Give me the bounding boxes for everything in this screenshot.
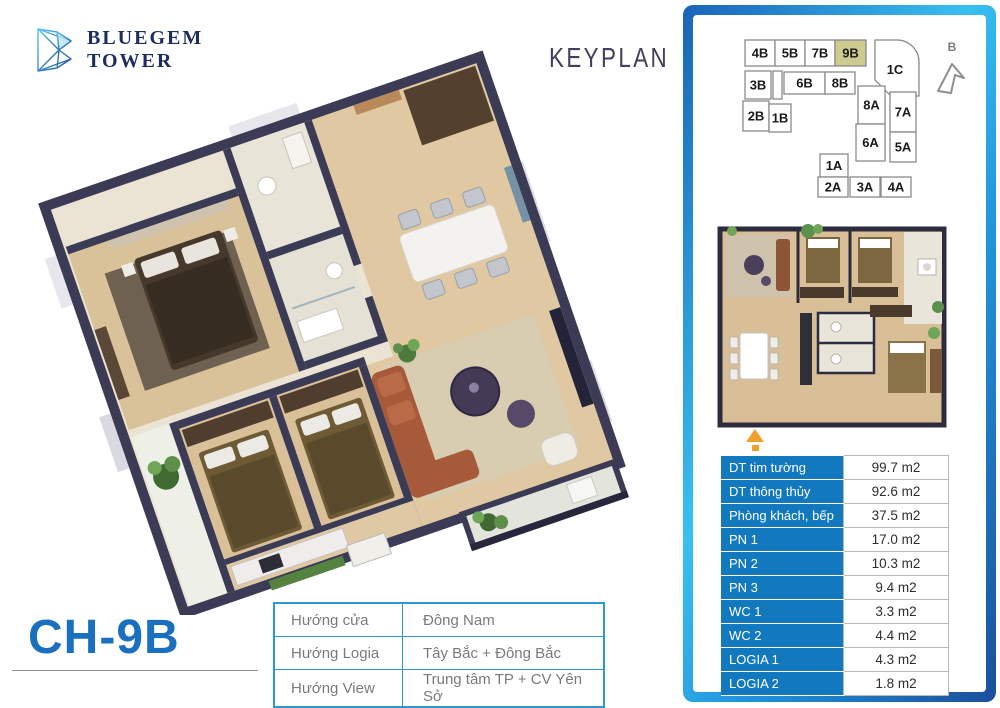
keyplan-unit-label: 8A: [863, 98, 880, 113]
keyplan-unit-label: 3B: [750, 78, 767, 93]
area-row: LOGIA 1 4.3 m2: [721, 648, 949, 672]
area-value-cell: 10.3 m2: [844, 552, 949, 576]
area-label-cell: DT tim tường: [721, 456, 844, 480]
orientation-value-cell: Tây Bắc + Đông Bắc: [403, 637, 605, 670]
area-value-cell: 9.4 m2: [844, 576, 949, 600]
area-label-cell: PN 1: [721, 528, 844, 552]
area-value-cell: 17.0 m2: [844, 528, 949, 552]
area-row: DT thông thủy 92.6 m2: [721, 480, 949, 504]
area-label-cell: PN 3: [721, 576, 844, 600]
keyplan-unit-label: 1B: [772, 111, 789, 126]
keyplan-unit-label: 4A: [888, 180, 905, 195]
orientation-table: Hướng cửa Đông Nam Hướng Logia Tây Bắc +…: [273, 602, 605, 708]
area-label-cell: WC 1: [721, 600, 844, 624]
keyplan-unit-label: 8B: [832, 76, 849, 91]
page: { "brand": {"line1": "BLUEGEM", "line2":…: [0, 0, 1000, 707]
keyplan-unit-label: 4B: [752, 46, 769, 61]
keyplan-unit-label: 5B: [782, 46, 799, 61]
keyplan-unit-label: 6B: [796, 76, 813, 91]
floorplan-3d: [2, 50, 664, 615]
area-row: WC 2 4.4 m2: [721, 624, 949, 648]
area-row: PN 3 9.4 m2: [721, 576, 949, 600]
orientation-label-cell: Hướng cửa: [274, 603, 403, 637]
orientation-row: Hướng View Trung tâm TP + CV Yên Sở: [274, 670, 604, 708]
area-row: LOGIA 2 1.8 m2: [721, 672, 949, 696]
keyplan-unit-label: 1C: [887, 62, 904, 77]
keyplan-unit-label: 6A: [862, 135, 879, 150]
area-value-cell: 4.4 m2: [844, 624, 949, 648]
area-value-cell: 4.3 m2: [844, 648, 949, 672]
area-row: DT tim tường 99.7 m2: [721, 456, 949, 480]
orientation-value-cell: Đông Nam: [403, 603, 605, 637]
area-value-cell: 37.5 m2: [844, 504, 949, 528]
keyplan-unit-label: 5A: [895, 140, 912, 155]
area-label-cell: LOGIA 2: [721, 672, 844, 696]
keyplan-unit-label: 7B: [812, 46, 829, 61]
area-table: DT tim tường 99.7 m2 DT thông thủy 92.6 …: [721, 455, 949, 696]
orientation-row: Hướng Logia Tây Bắc + Đông Bắc: [274, 637, 604, 670]
area-row: PN 2 10.3 m2: [721, 552, 949, 576]
keyplan-unit-label: 1A: [826, 158, 843, 173]
keyplan-diagram: 4B 5B 7B 9B 1C 3B 6B 8B 2B 1B 8A 7A 6A 5…: [733, 31, 985, 213]
orientation-label-cell: Hướng View: [274, 670, 403, 708]
area-label-cell: LOGIA 1: [721, 648, 844, 672]
area-label-cell: DT thông thủy: [721, 480, 844, 504]
unit-code-title: CH-9B: [28, 610, 180, 665]
area-value-cell: 99.7 m2: [844, 456, 949, 480]
entrance-arrow-icon: [746, 429, 764, 451]
compass-arrow-icon: [938, 64, 964, 93]
keyplan-unit-label: 2A: [825, 180, 842, 195]
area-label-cell: Phòng khách, bếp: [721, 504, 844, 528]
keyplan-unit-label: 3A: [857, 180, 874, 195]
orientation-label-cell: Hướng Logia: [274, 637, 403, 670]
area-row: PN 1 17.0 m2: [721, 528, 949, 552]
area-value-cell: 1.8 m2: [844, 672, 949, 696]
orientation-value-cell: Trung tâm TP + CV Yên Sở: [403, 670, 605, 708]
area-value-cell: 3.3 m2: [844, 600, 949, 624]
area-row: Phòng khách, bếp 37.5 m2: [721, 504, 949, 528]
side-panel: 4B 5B 7B 9B 1C 3B 6B 8B 2B 1B 8A 7A 6A 5…: [683, 5, 996, 702]
area-value-cell: 92.6 m2: [844, 480, 949, 504]
title-underline: [12, 670, 258, 671]
area-label-cell: WC 2: [721, 624, 844, 648]
keyplan-sliver: [773, 71, 782, 99]
keyplan-unit-label: 2B: [748, 109, 765, 124]
floorplan-2d: [712, 223, 964, 455]
area-label-cell: PN 2: [721, 552, 844, 576]
compass-label: B: [948, 40, 957, 54]
area-row: WC 1 3.3 m2: [721, 600, 949, 624]
orientation-row: Hướng cửa Đông Nam: [274, 603, 604, 637]
keyplan-unit-label: 7A: [895, 105, 912, 120]
side-panel-inner: 4B 5B 7B 9B 1C 3B 6B 8B 2B 1B 8A 7A 6A 5…: [693, 15, 986, 692]
keyplan-unit-label: 9B: [842, 46, 859, 61]
brand-name-line1: BLUEGEM: [87, 27, 203, 50]
compass: B: [938, 40, 964, 93]
